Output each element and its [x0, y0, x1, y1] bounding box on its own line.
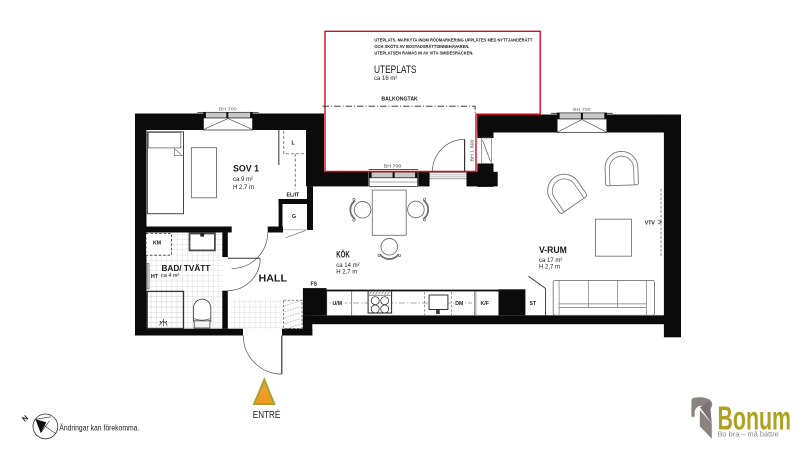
svg-text:KÖK: KÖK [336, 250, 350, 260]
svg-text:BALKONGTAK: BALKONGTAK [381, 96, 418, 102]
svg-text:BH 1 600: BH 1 600 [469, 139, 474, 162]
svg-text:K/F: K/F [481, 301, 489, 307]
svg-text:BH 700: BH 700 [219, 107, 238, 112]
svg-text:DM: DM [455, 301, 463, 307]
svg-text:ca 17 m²: ca 17 m² [539, 258, 562, 264]
svg-text:Bo bra – må bättre: Bo bra – må bättre [718, 430, 779, 439]
svg-text:ENTRÉ: ENTRÉ [253, 408, 281, 421]
svg-text:VTV: VTV [645, 221, 656, 227]
svg-text:BH 700: BH 700 [573, 107, 591, 112]
svg-text:Ändringar kan förekomma.: Ändringar kan förekomma. [59, 423, 139, 432]
svg-text:KM: KM [153, 240, 161, 246]
svg-text:G: G [292, 214, 296, 220]
svg-text:V-RUM: V-RUM [539, 245, 567, 255]
svg-text:OCH SKÖTS AV BOSTADSRÄTTSINNEH: OCH SKÖTS AV BOSTADSRÄTTSINNEHAVAREN. [374, 43, 469, 49]
svg-text:HALL: HALL [259, 273, 288, 284]
svg-text:ca 9 m²: ca 9 m² [233, 177, 253, 183]
svg-text:H 2,7 m: H 2,7 m [233, 185, 254, 191]
svg-text:UTEPLATSEN RAMAS IN AV VITA SM: UTEPLATSEN RAMAS IN AV VITA SMIDESRÄCKEN… [374, 49, 473, 55]
svg-text:ca 4 m²: ca 4 m² [161, 273, 180, 279]
svg-text:BAD/ TVÄTT: BAD/ TVÄTT [162, 263, 212, 273]
svg-text:HT: HT [151, 274, 159, 280]
svg-text:BH 700: BH 700 [384, 164, 402, 169]
svg-text:SOV 1: SOV 1 [233, 163, 259, 173]
svg-text:ST: ST [530, 301, 537, 307]
svg-text:EL/IT: EL/IT [287, 193, 301, 199]
svg-text:H 2,7 m: H 2,7 m [539, 265, 560, 271]
svg-text:ca 14 m²: ca 14 m² [336, 263, 359, 269]
svg-text:UTEPLATS. MARKYTA INOM RÖDMARK: UTEPLATS. MARKYTA INOM RÖDMARKERING UPPL… [374, 36, 532, 42]
svg-text:UTEPLATS: UTEPLATS [374, 64, 417, 76]
svg-text:H 2,7 m: H 2,7 m [336, 270, 357, 276]
svg-text:U/M: U/M [333, 301, 343, 307]
svg-text:FS: FS [311, 281, 318, 287]
svg-text:ca 16 m²: ca 16 m² [374, 76, 397, 82]
